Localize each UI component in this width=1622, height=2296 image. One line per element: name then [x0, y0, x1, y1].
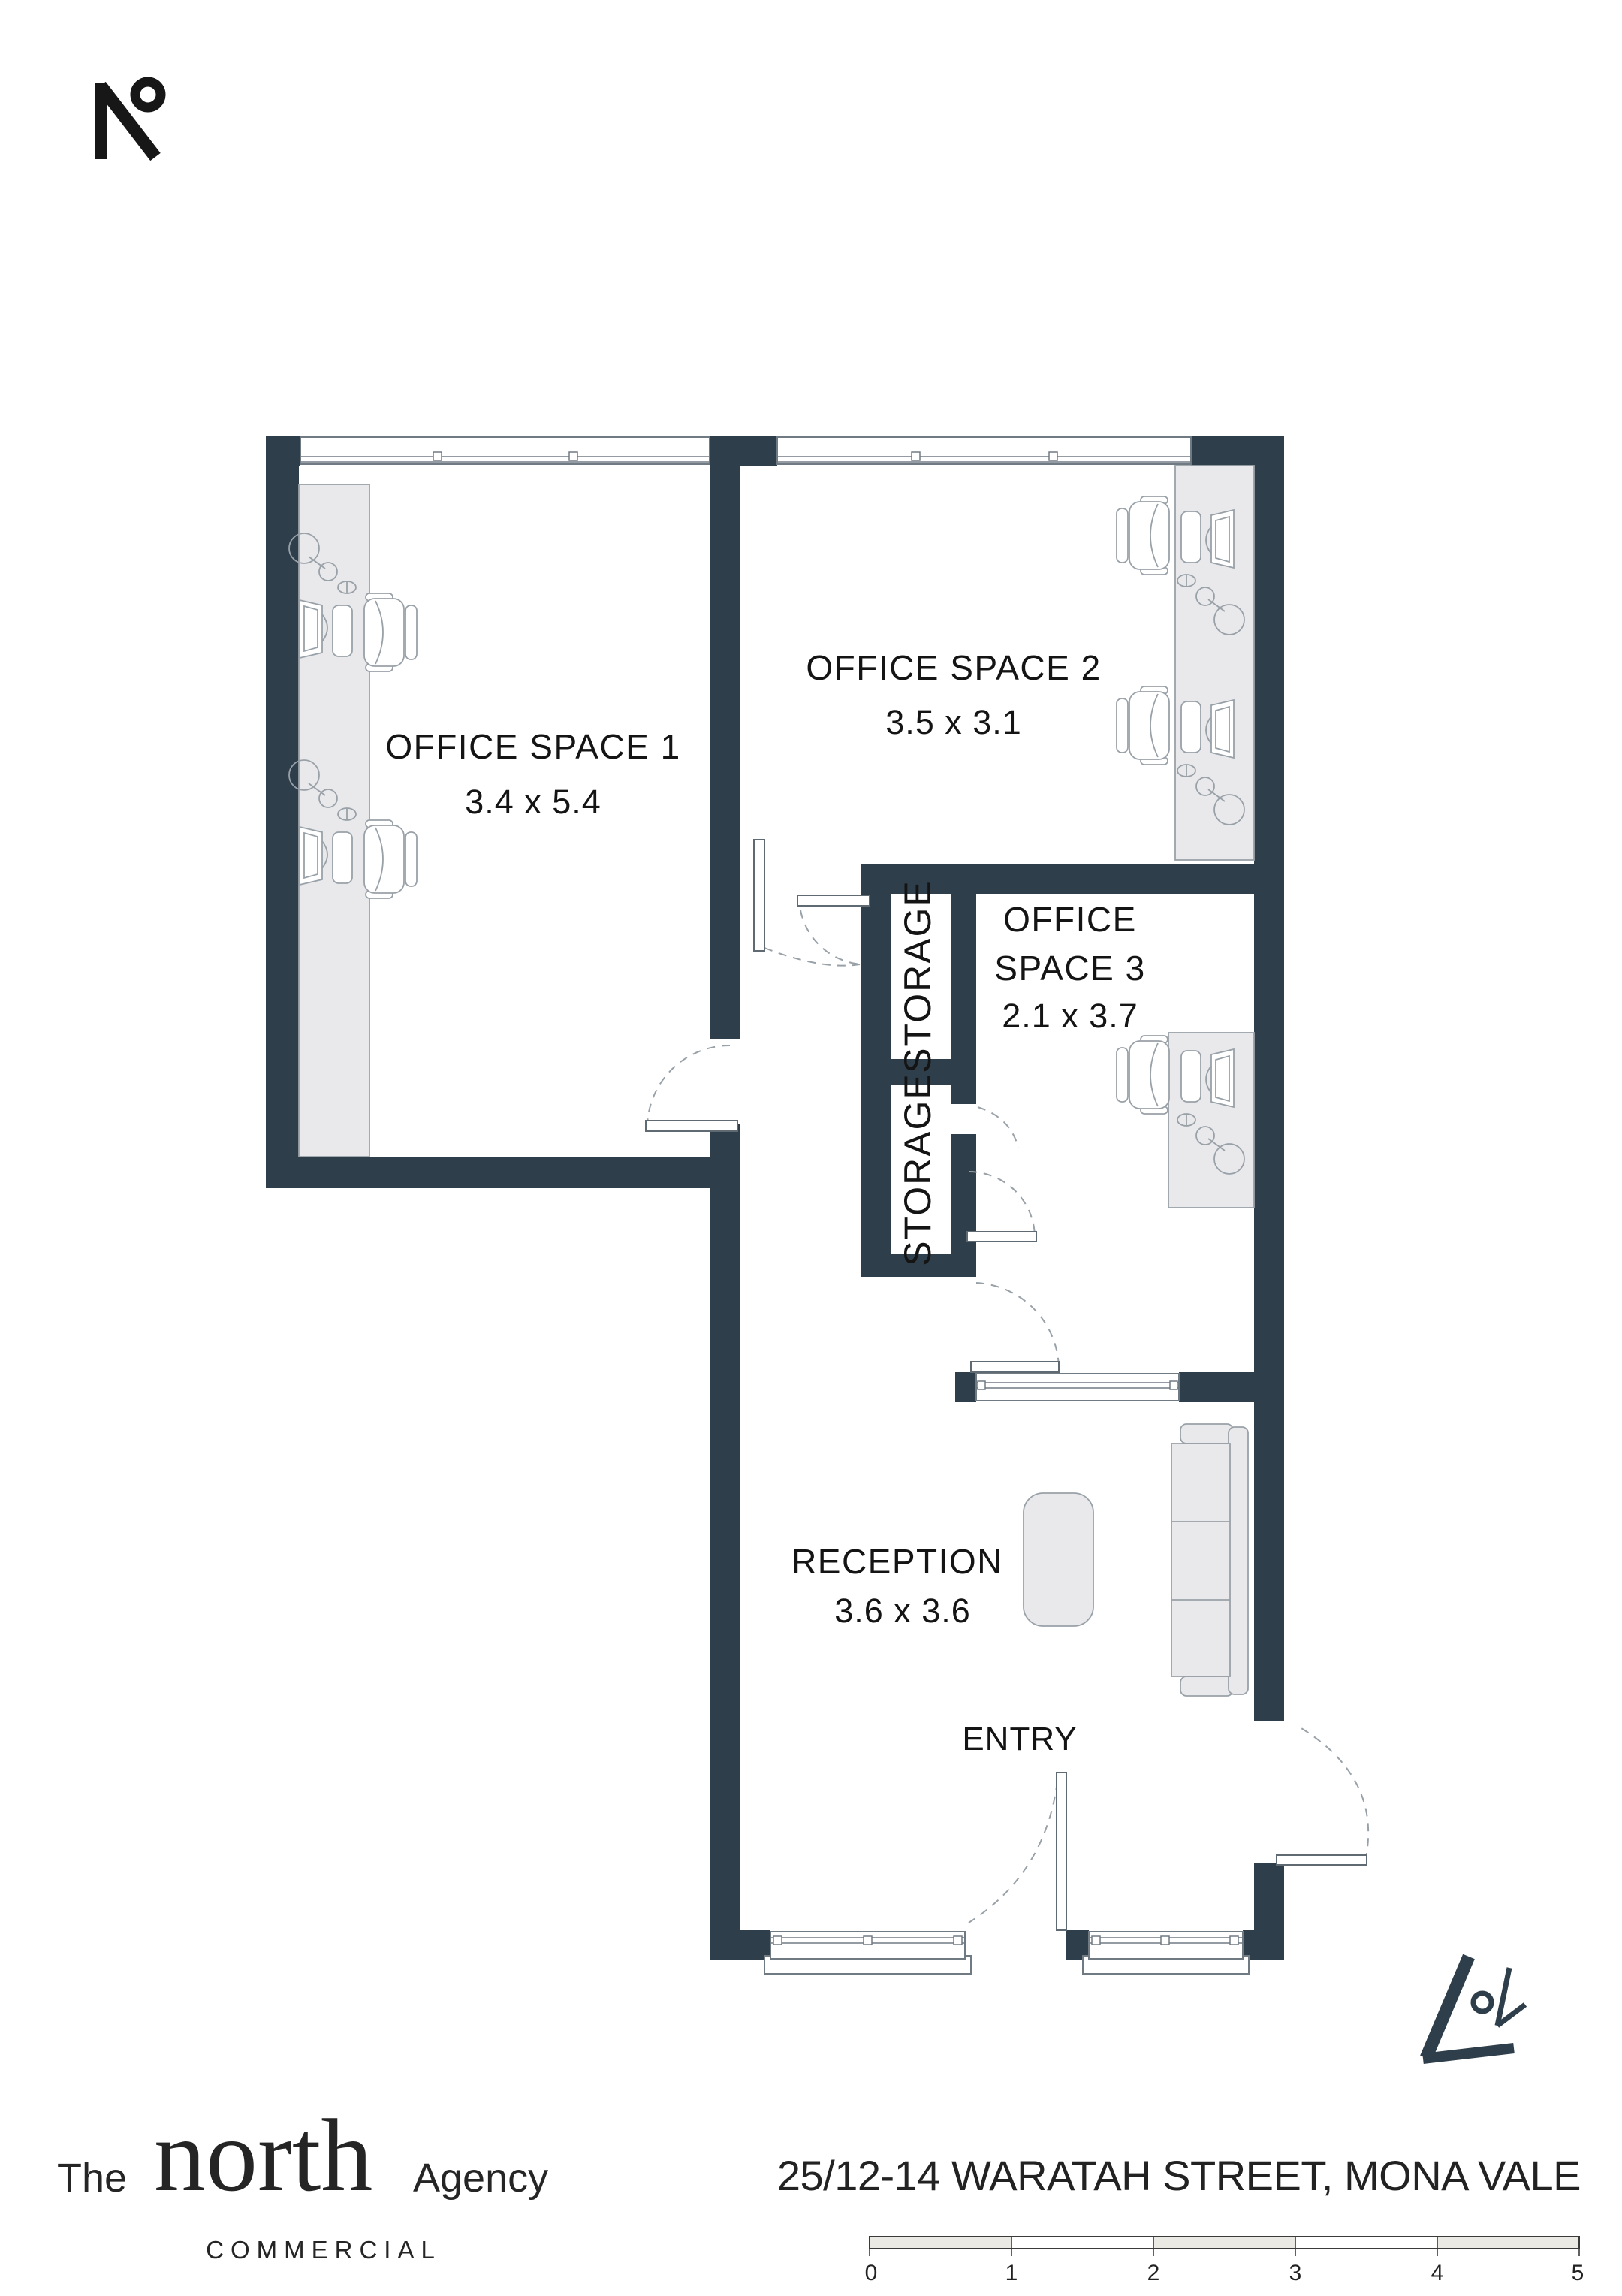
furniture-office3: [1117, 1033, 1254, 1208]
brand-suffix: Agency: [413, 2156, 548, 2201]
window-reception-left: [764, 1932, 971, 1974]
room-dims-office2: 3.5 x 3.1: [885, 703, 1022, 741]
door-office1: [646, 1045, 737, 1131]
brand-tagline: COMMERCIAL: [206, 2236, 442, 2264]
room-label-office3-line1: OFFICE: [1003, 900, 1137, 939]
floorplan-page: OFFICE SPACE 1 3.4 x 5.4 OFFICE SPACE 2 …: [0, 0, 1622, 2296]
brand-prefix: The: [57, 2156, 127, 2201]
side-exit-door: [1277, 1726, 1368, 1865]
brand-name: north: [154, 2098, 372, 2213]
door-storage-hall: [967, 1107, 1036, 1242]
scale-tick-5: 5: [1572, 2261, 1584, 2285]
room-label-office1: OFFICE SPACE 1: [385, 727, 680, 766]
scale-tick-2: 2: [1147, 2261, 1160, 2285]
window-office1-top: [300, 437, 710, 464]
furniture-office1: [289, 484, 417, 1157]
room-dims-office3: 2.1 x 3.7: [1002, 997, 1138, 1035]
property-address: 25/12-14 WARATAH STREET, MONA VALE: [777, 2152, 1581, 2199]
walls: [266, 436, 1284, 1960]
windows: [300, 437, 1249, 1974]
floor-plan: OFFICE SPACE 1 3.4 x 5.4 OFFICE SPACE 2 …: [0, 0, 1622, 2296]
desk-bench: [299, 484, 369, 1157]
north-degree-logo-icon: [95, 82, 161, 159]
room-dims-office1: 3.4 x 5.4: [465, 783, 601, 821]
room-label-storage-lower: STORAGE: [897, 1073, 939, 1266]
room-label-office2: OFFICE SPACE 2: [806, 648, 1101, 687]
room-label-office3-line2: SPACE 3: [994, 949, 1145, 988]
sofa: [1171, 1424, 1248, 1696]
window-reception-right: [1083, 1932, 1249, 1974]
room-label-reception: RECEPTION: [791, 1542, 1003, 1581]
entry-door: [969, 1773, 1066, 1930]
scale-tick-4: 4: [1431, 2261, 1444, 2285]
room-label-storage-upper: STORAGE: [897, 879, 939, 1073]
door-office3-reception: [971, 1283, 1059, 1372]
scale-tick-3: 3: [1289, 2261, 1302, 2285]
entry-label: ENTRY: [962, 1721, 1077, 1757]
brand-logo: The north Agency COMMERCIAL: [57, 2098, 548, 2264]
north-compass-icon: [1423, 1957, 1525, 2059]
furniture-office2: [1117, 466, 1254, 860]
scale-tick-0: 0: [865, 2261, 878, 2285]
scale-tick-1: 1: [1005, 2261, 1018, 2285]
furniture-reception: [1024, 1424, 1248, 1696]
double-door-corridor: [754, 840, 870, 966]
scale-bar: 0 1 2 3 4 5: [865, 2237, 1584, 2285]
room-dims-reception: 3.6 x 3.6: [834, 1592, 971, 1630]
rug: [1024, 1493, 1093, 1626]
window-office2-top: [777, 437, 1191, 464]
window-partition-office3: [976, 1374, 1179, 1401]
